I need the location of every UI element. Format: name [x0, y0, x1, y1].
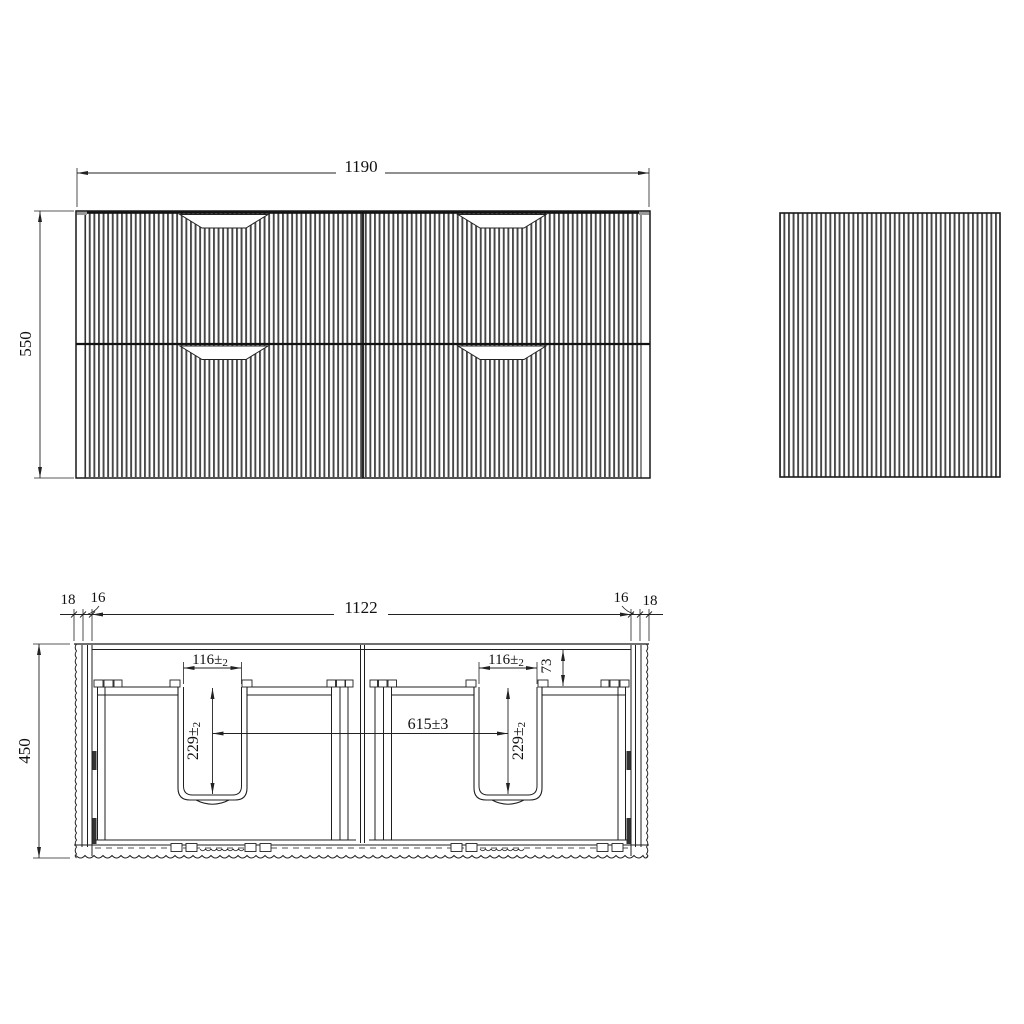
dimension-front-width: 1190 [77, 157, 649, 207]
side-view [780, 213, 1000, 477]
dim-cutout-spacing-label: 615±3 [408, 716, 449, 733]
dim-cutout-width-right-label: 116±2 [488, 652, 524, 669]
slide-mark [93, 751, 97, 770]
dim-back-rail-gap-label: 73 [539, 659, 555, 674]
drawer-side-walls [98, 687, 626, 840]
drawer-back-rails [97, 687, 626, 695]
dim-plan-depth-label: 450 [15, 738, 34, 764]
fluted-edge-right [647, 644, 648, 858]
dim-front-width-label: 1190 [344, 157, 377, 176]
drawing-canvas: 1190 550 [0, 0, 1024, 1024]
dim-left-panel-label: 18 [61, 592, 76, 608]
dimension-cutout-width-right: 116±2 [479, 652, 537, 684]
dimension-plan-depth: 450 [15, 644, 70, 858]
slide-mark [627, 751, 631, 770]
vanity-technical-drawing: 1190 550 [0, 0, 1024, 1024]
fluted-edge-left [75, 644, 76, 858]
fluted-edge-front [76, 856, 648, 859]
dim-plan-inner-width-label: 1122 [344, 598, 377, 617]
fluted-side-panel [780, 213, 1000, 477]
dimension-left-thicknesses: 18 16 [60, 590, 106, 641]
plan-view: 1122 18 16 16 18 4 [15, 590, 663, 858]
dim-cutout-depth-left-label: 229±2 [185, 722, 203, 760]
front-view: 1190 550 [16, 157, 650, 478]
dimension-cutout-width-left: 116±2 [184, 652, 242, 684]
dimension-plan-inner-width: 1122 [92, 598, 631, 641]
dimension-cutout-depth-left: 229±2 [185, 688, 213, 794]
dim-right-side-label: 16 [614, 590, 630, 606]
dim-cutout-depth-right-label: 229±2 [510, 722, 528, 760]
dimension-cutout-depth-right: 229±2 [508, 688, 528, 794]
dim-cutout-width-left-label: 116±2 [192, 652, 228, 669]
front-rail-band [74, 840, 649, 858]
dimension-front-height: 550 [16, 211, 74, 478]
dim-front-height-label: 550 [16, 331, 35, 357]
dim-right-panel-label: 18 [643, 593, 658, 609]
dimension-right-thicknesses: 16 18 [614, 590, 664, 641]
corner-brackets [94, 680, 629, 687]
dim-left-side-label: 16 [91, 590, 107, 606]
